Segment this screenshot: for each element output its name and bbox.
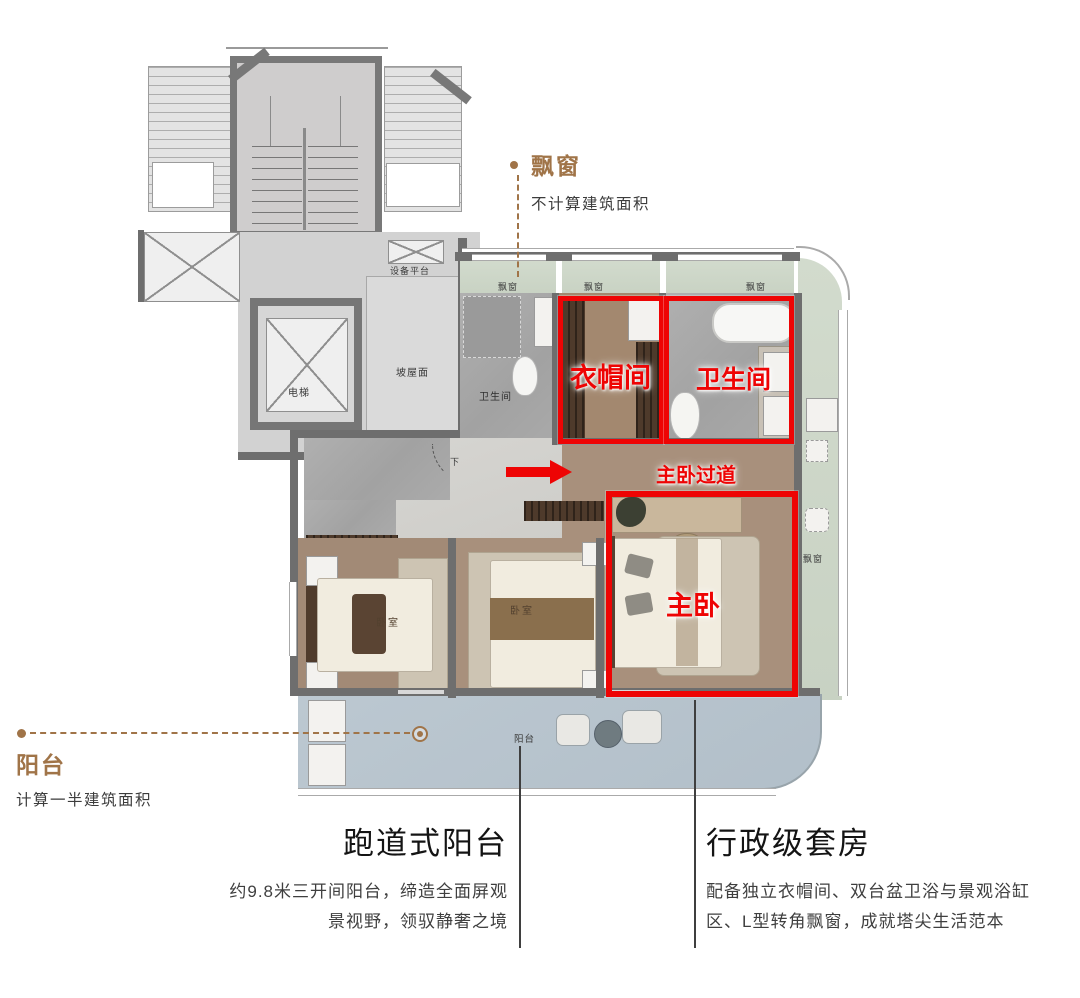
suite-feature-title: 行政级套房 [706,818,1078,863]
roof-box-right [386,163,460,207]
shaft-xbox-left [144,232,240,302]
balcony-feature-line2: 景视野，领驭静奢之境 [178,907,508,937]
stair-rail-line2 [340,96,341,146]
red-arrow-head [550,460,572,484]
bay-callout-dot [510,161,518,169]
bay-callout-label: 飘窗 [531,147,581,181]
bay3-label: 飘窗 [746,280,766,293]
suite-feature-leader [694,700,696,948]
master-highlight-label: 主卧 [666,584,720,623]
floorplan-page: 下 上 设备平台 电梯 坡屋面 飘窗 飘窗 飘窗 飘窗 卫生间 下 [0,0,1080,998]
bedroom1-headboard [306,586,317,662]
balcony-feature-line1: 约9.8米三开间阳台，缔造全面屏观 [178,877,508,907]
hall-top-wall [296,430,460,438]
stair-treads-right [308,146,358,230]
corridor-closet [524,501,604,521]
top-window-1 [472,254,546,261]
bay4-label: 飘窗 [803,552,823,565]
top-window-3 [678,254,782,261]
stair-rail-line1 [270,96,271,146]
balcony-feature-title: 跑道式阳台 [178,818,508,863]
balcony-callout-note: 计算一半建筑面积 [16,788,152,810]
roof-box-left [152,162,214,208]
bay-window-right-strip [798,258,842,700]
masterbath-highlight-label: 卫生间 [696,360,771,396]
washer-1 [308,700,346,742]
right-glazing [838,310,848,696]
balcony-callout-dashline [30,732,410,734]
corridor-highlight-label: 主卧过道 [656,459,736,488]
internal-stair-lower [304,500,396,538]
lobby-left-wall [138,230,144,302]
equipment-platform-xbox [388,240,444,264]
bedroom2-nightstand-top [582,542,608,566]
bay-callout-dashline [517,175,519,277]
red-arrow-shaft [506,467,550,477]
bay-decor-2 [805,508,829,532]
shower-secondary [463,296,521,358]
stair-treads-left [252,146,302,230]
balcony-feature-block: 跑道式阳台 约9.8米三开间阳台，缔造全面屏观 景视野，领驭静奢之境 [178,818,508,937]
wall-bedroom1-2 [448,538,456,698]
bay-window-2 [562,260,660,295]
bay-window-3 [666,260,794,295]
secondary-bathroom-label: 卫生间 [479,388,512,403]
wall-bedroom2-master [596,538,604,698]
corner-curve-line [796,246,850,300]
core-top-bracket [226,47,388,49]
balcony-callout-label: 阳台 [16,746,66,780]
sloped-roof-area [366,276,468,442]
wall-masterbath-right [794,293,802,448]
balcony-rail [298,788,776,796]
bay2-label: 飘窗 [584,280,604,293]
bedroom1-label: 卧室 [376,614,400,629]
balcony-chair-1 [556,714,590,746]
balcony-callout-dot [17,729,26,738]
south-door-1 [398,690,444,694]
left-window [289,582,297,656]
bedroom2-bed-runner [490,598,594,640]
balcony-small-label: 阳台 [514,731,535,745]
sloped-roof-label: 坡屋面 [396,364,429,379]
balcony-feature-leader [519,746,521,948]
cloakroom-highlight-label: 衣帽间 [570,356,651,395]
suite-feature-line2: 区、L型转角飘窗，成就塔尖生活范本 [706,907,1078,937]
balcony-table [594,720,622,748]
left-outer-wall [290,430,298,696]
top-window-2 [572,254,652,261]
suite-feature-block: 行政级套房 配备独立衣帽间、双台盆卫浴与景观浴缸 区、L型转角飘窗，成就塔尖生活… [706,818,1078,937]
balcony-chair-2 [622,710,662,744]
suite-feature-line1: 配备独立衣帽间、双台盆卫浴与景观浴缸 [706,877,1078,907]
internal-stair-upper [304,438,450,500]
bay-callout-note: 不计算建筑面积 [531,192,650,214]
stair-flight-divider [303,128,306,230]
bay-decor-1 [806,440,828,462]
bay1-label: 飘窗 [498,280,518,293]
bedroom2-label: 卧室 [510,602,534,617]
washer-2 [308,744,346,786]
balcony-callout-target [412,726,428,742]
shower-master [806,398,838,432]
toilet-secondary [512,356,538,396]
elevator-label: 电梯 [288,384,310,399]
